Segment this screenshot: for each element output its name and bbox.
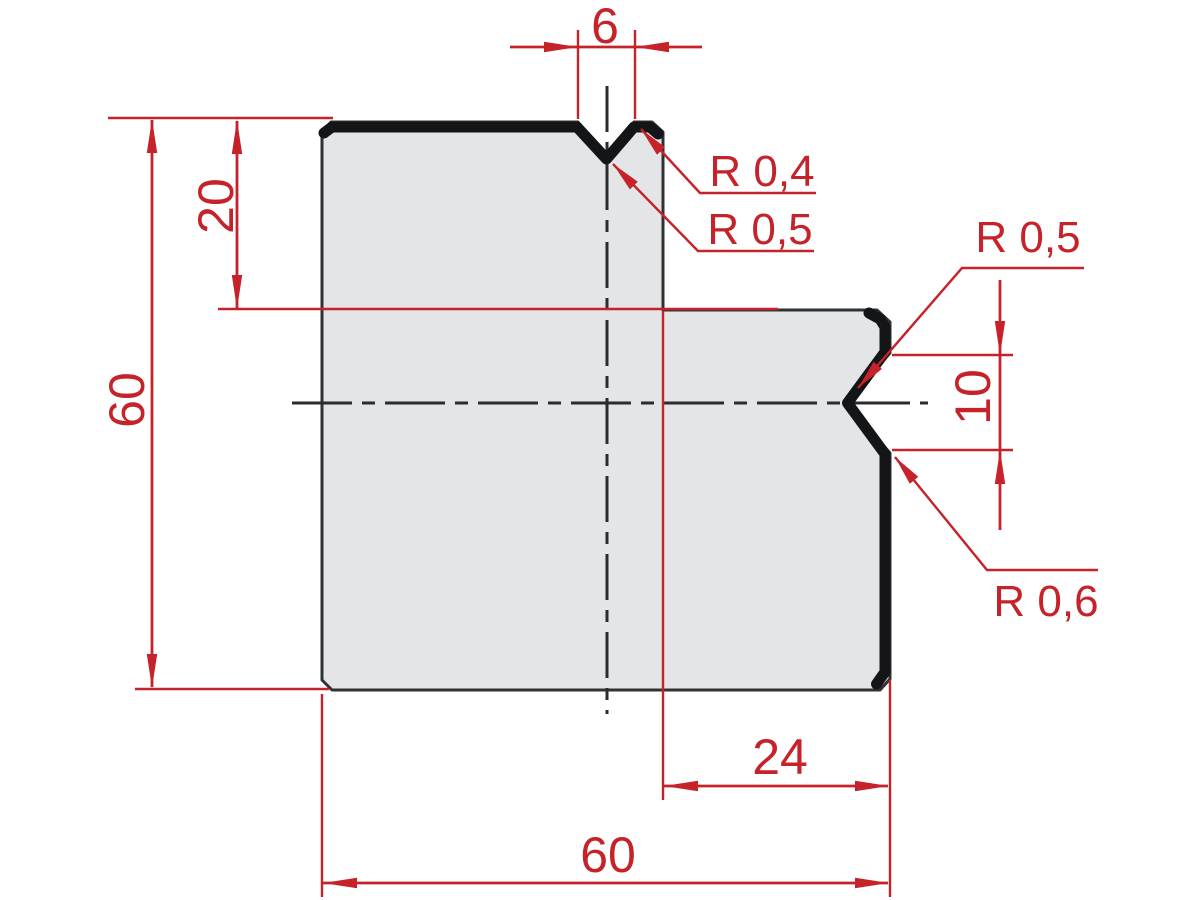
leader-r06-label: R 0,6 <box>993 577 1098 626</box>
dim-60l-label: 60 <box>99 372 155 428</box>
drawing-canvas: 6 20 60 10 24 6 <box>0 0 1200 900</box>
dim-20-label: 20 <box>188 178 244 234</box>
leader-r04-label: R 0,4 <box>709 147 814 196</box>
dim-60b-label: 60 <box>580 827 636 883</box>
leader-r05-right-label: R 0,5 <box>975 213 1080 262</box>
die-drawing: 6 20 60 10 24 6 <box>0 0 1200 900</box>
leader-r05-top-label: R 0,5 <box>707 205 812 254</box>
dim-24-label: 24 <box>752 729 808 785</box>
dim-10-label: 10 <box>945 369 1001 425</box>
dim-6-label: 6 <box>591 0 619 54</box>
